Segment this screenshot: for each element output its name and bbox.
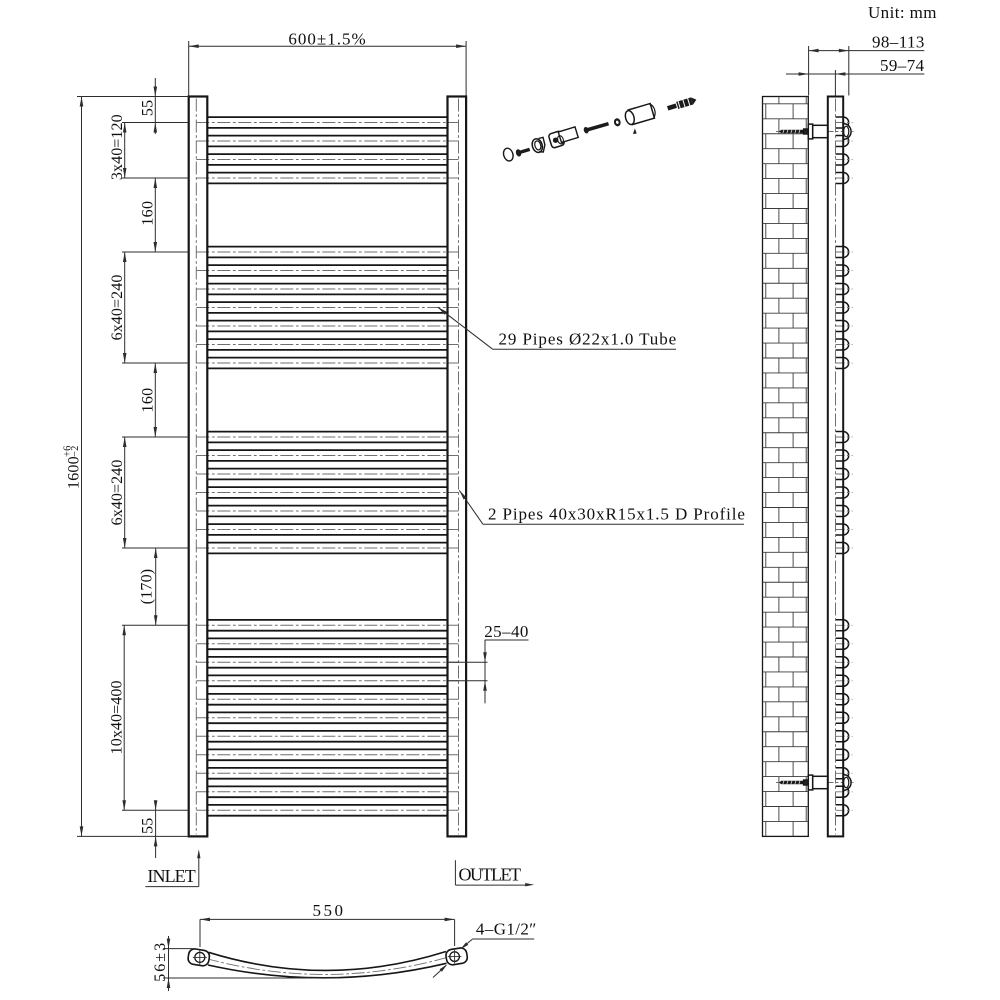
svg-text:600±1.5%: 600±1.5% bbox=[288, 29, 366, 48]
svg-text:3x40=120: 3x40=120 bbox=[109, 114, 126, 180]
svg-text:25–40: 25–40 bbox=[484, 622, 529, 641]
svg-text:55: 55 bbox=[140, 100, 157, 116]
svg-text:(170): (170) bbox=[139, 569, 156, 605]
svg-text:59–74: 59–74 bbox=[880, 56, 925, 75]
svg-text:1600: 1600 bbox=[66, 456, 83, 489]
svg-text:160: 160 bbox=[140, 201, 157, 226]
svg-text:98–113: 98–113 bbox=[872, 32, 925, 51]
svg-text:56±3: 56±3 bbox=[152, 941, 169, 982]
svg-text:550: 550 bbox=[313, 901, 346, 920]
svg-text:55: 55 bbox=[140, 817, 157, 833]
svg-text:4–G1/2″: 4–G1/2″ bbox=[476, 920, 537, 939]
svg-text:29 Pipes Ø22x1.0 Tube: 29 Pipes Ø22x1.0 Tube bbox=[499, 330, 678, 349]
svg-text:160: 160 bbox=[140, 388, 157, 413]
svg-text:−2: −2 bbox=[70, 445, 81, 457]
svg-text:10x40=400: 10x40=400 bbox=[109, 680, 126, 754]
svg-text:6x40=240: 6x40=240 bbox=[109, 460, 126, 526]
svg-text:6x40=240: 6x40=240 bbox=[109, 275, 126, 341]
svg-text:INLET: INLET bbox=[147, 866, 195, 886]
svg-text:OUTLET: OUTLET bbox=[459, 865, 521, 885]
svg-text:2 Pipes 40x30xR15x1.5 D Profil: 2 Pipes 40x30xR15x1.5 D Profile bbox=[488, 505, 746, 524]
svg-text:Unit: mm: Unit: mm bbox=[868, 3, 937, 22]
